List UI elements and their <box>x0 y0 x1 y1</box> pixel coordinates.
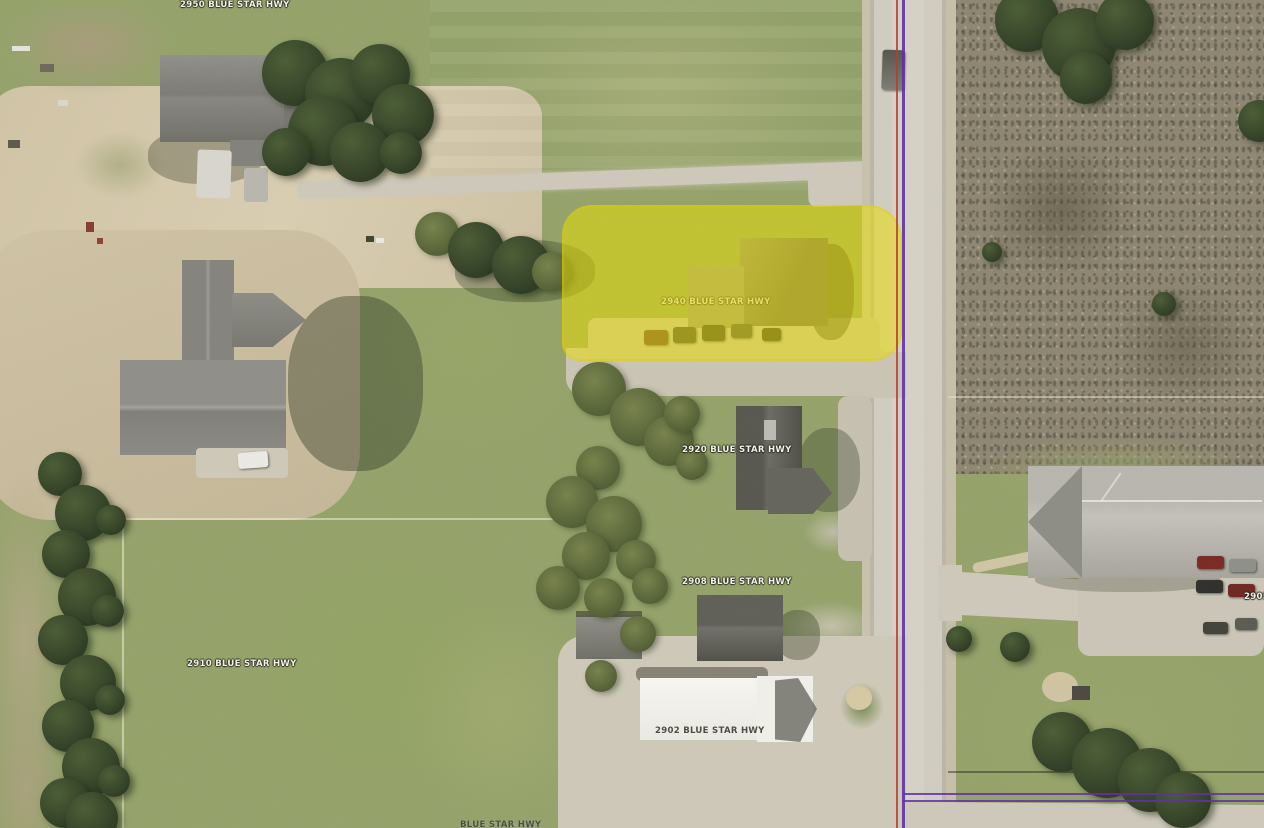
building-shadow <box>288 296 423 471</box>
bush <box>632 568 668 604</box>
debris <box>86 222 94 232</box>
sand-circle <box>846 686 872 710</box>
tree <box>98 765 130 797</box>
boundary-line-red <box>896 0 898 828</box>
minor-boundary-line <box>948 396 1264 398</box>
parked-car <box>1196 580 1223 593</box>
storage-trailer <box>196 149 232 198</box>
debris <box>12 46 30 51</box>
office-building-north-wing <box>182 260 234 368</box>
parked-car <box>1235 618 1257 630</box>
tree <box>96 505 126 535</box>
roof-ridge <box>1082 500 1262 502</box>
small-vehicle <box>366 236 374 242</box>
bush <box>536 566 580 610</box>
debris <box>97 238 103 244</box>
bush <box>585 660 617 692</box>
tree <box>95 685 125 715</box>
minor-boundary-line <box>122 518 560 520</box>
road-apron <box>938 565 962 621</box>
tree <box>262 128 310 176</box>
white-car <box>237 451 268 469</box>
lawn-stripes <box>430 0 870 190</box>
boundary-line-purple <box>903 793 1264 795</box>
debris <box>8 140 20 148</box>
small-vehicle <box>376 238 384 243</box>
tree <box>946 626 972 652</box>
address-label: 2908 BLUE STAR HWY <box>682 577 792 587</box>
roof-detail <box>764 420 776 440</box>
address-label-partial: BLUE STAR HWY <box>460 820 541 828</box>
bush <box>620 616 656 652</box>
tree <box>982 242 1002 262</box>
address-label: 2950 BLUE STAR HWY <box>180 0 290 10</box>
address-label-partial: 2905 BLUE STAR HWY <box>1244 592 1264 602</box>
boundary-line-purple <box>902 0 905 828</box>
boundary-line-purple <box>903 800 1264 802</box>
small-structure <box>1072 686 1090 700</box>
address-label: 2910 BLUE STAR HWY <box>187 659 297 669</box>
parked-car <box>1229 559 1256 572</box>
highlighted-parcel[interactable] <box>562 205 902 361</box>
tree <box>1060 52 1112 104</box>
tree <box>380 132 422 174</box>
aerial-map[interactable]: 2950 BLUE STAR HWY 2910 BLUE STAR HWY 29… <box>0 0 1264 828</box>
tree <box>1152 292 1176 316</box>
address-label: 2902 BLUE STAR HWY <box>655 726 765 736</box>
address-label: 2920 BLUE STAR HWY <box>682 445 792 455</box>
parked-car <box>1197 556 1224 569</box>
woods-shade <box>960 120 1160 300</box>
parked-car <box>1203 622 1228 634</box>
debris <box>58 100 68 106</box>
tree <box>1000 632 1030 662</box>
bush <box>584 578 624 618</box>
debris <box>40 64 54 72</box>
storage-trailer <box>244 168 268 202</box>
bush <box>664 396 700 432</box>
office-building-south-wing <box>120 360 286 455</box>
house-2908 <box>697 595 783 661</box>
tree <box>92 595 124 627</box>
